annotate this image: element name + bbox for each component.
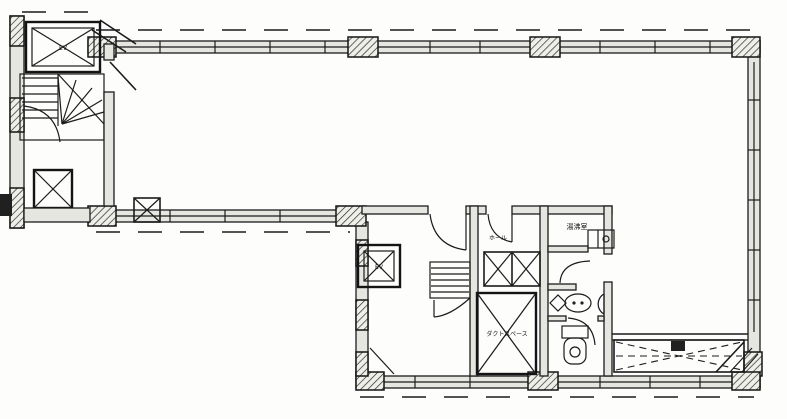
pipe-shaft-pair: [484, 252, 540, 286]
kitchenette-label: 湯沸室: [567, 222, 588, 231]
duct-space-label: ダクトスペース: [486, 330, 527, 338]
balcony-drain: [671, 341, 685, 351]
floor-plan-drawing: EV: [0, 0, 787, 419]
exterior-walls: [10, 16, 760, 388]
duct-space: ダクトスペース: [477, 293, 536, 374]
door-leaf-core-exit: [110, 62, 136, 90]
pedestal-basin: [598, 294, 604, 314]
balcony: [614, 340, 758, 372]
floor-plan-canvas: EV: [0, 0, 787, 419]
corner-diagonal: [370, 348, 394, 374]
elevator-left-shaft: [34, 170, 72, 208]
corner-sink: [550, 295, 566, 311]
elevator-main-label: EV: [375, 264, 384, 271]
elevator-main: EV: [358, 245, 400, 287]
left-wall-pier: [0, 194, 12, 216]
central-core-walls: [362, 206, 748, 376]
staircase-main: [430, 262, 470, 317]
elevator-upper-left-label: EV: [59, 45, 68, 52]
washbasin: [565, 294, 591, 312]
staircase-upper-left: [20, 74, 104, 142]
balcony-corner-diagonal: [716, 342, 744, 372]
washroom-fixtures: [550, 294, 604, 364]
toilet: [562, 326, 588, 364]
